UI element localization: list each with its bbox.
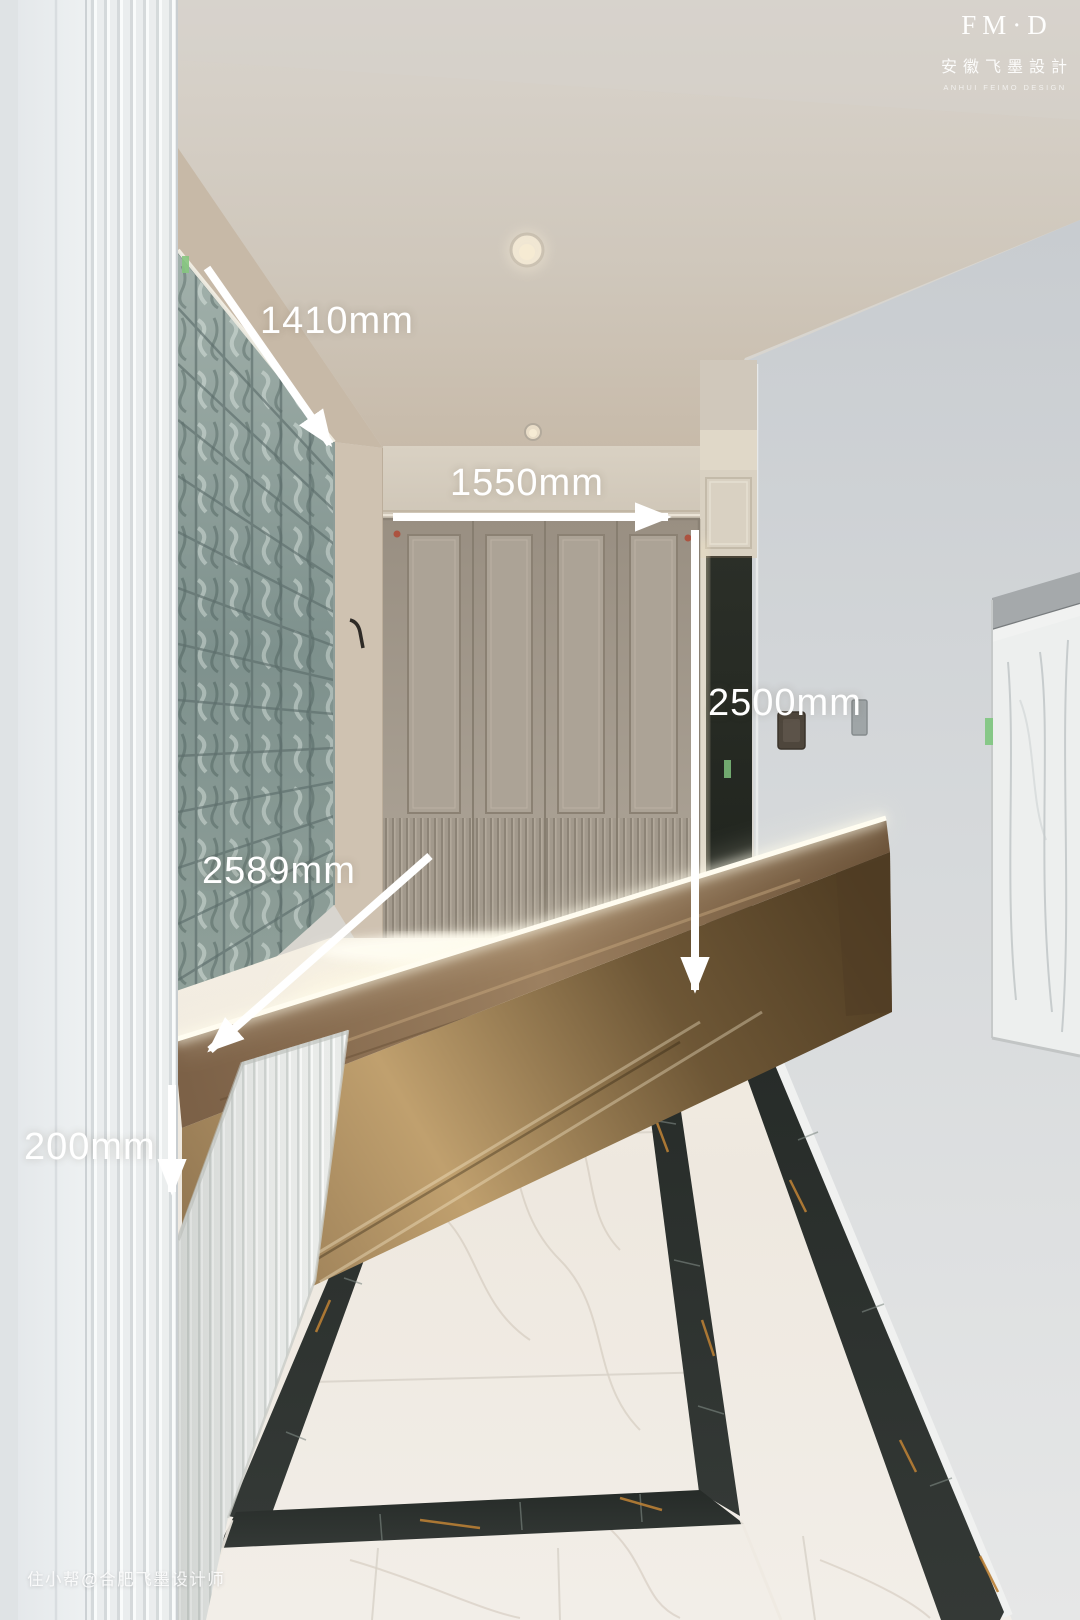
dimension-label-bench-length: 2589mm — [202, 852, 356, 890]
brand-logo-english: ANHUI FEIMO DESIGN — [933, 83, 1075, 92]
dimension-label-bench-thickness: 200mm — [24, 1128, 156, 1166]
watermark: 住小帮@合肥飞墨设计师 — [27, 1566, 225, 1590]
dimension-label-wardrobe-height: 2500mm — [708, 684, 862, 722]
interior-photo-page: { "image": { "type": "interior-design-ph… — [0, 0, 1080, 1620]
dimension-arrow-glass-wall-width — [207, 268, 330, 444]
brand-logo: FM·D 安徽飞墨設計 ANHUI FEIMO DESIGN — [933, 10, 1075, 92]
dimension-label-glass-wall-width: 1410mm — [260, 302, 414, 340]
dimension-label-wardrobe-width: 1550mm — [450, 464, 604, 502]
brand-logo-chinese: 安徽飞墨設計 — [933, 53, 1075, 77]
dimension-annotations — [0, 0, 1080, 1620]
brand-logo-main: FM·D — [933, 10, 1075, 41]
